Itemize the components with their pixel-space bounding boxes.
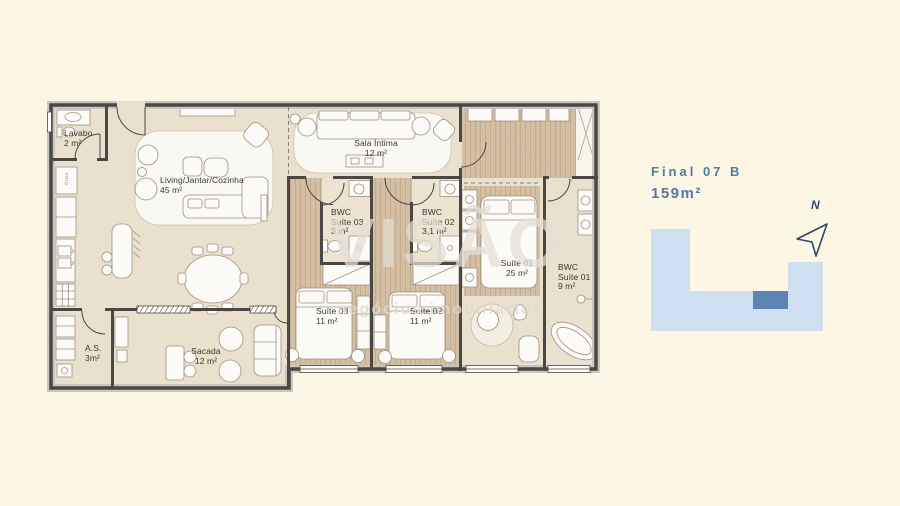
north-label: N [811, 198, 820, 212]
room-label-sacada: Sacada12 m² [178, 347, 234, 366]
room-label-lavabo: Lavabo2 m² [64, 129, 93, 148]
floor-plan-drawing [0, 0, 900, 506]
room-label-bwc-suite-03: BWCSuíte 033 m² [331, 208, 363, 237]
room-label-bwc-suite-01: BWCSuíte 019 m² [558, 263, 590, 292]
room-label-suite-03: Suíte 0311 m² [316, 307, 348, 326]
unit-title: Final 07 B [651, 164, 742, 179]
fridge-label: FRIG [64, 173, 69, 186]
unit-position-marker [753, 291, 788, 309]
room-label-bwc-suite-02: BWCSuíte 023,1 m² [422, 208, 454, 237]
room-label-as: A.S.3m² [85, 344, 101, 363]
north-arrow-icon [797, 224, 827, 256]
unit-area: 159m² [651, 185, 702, 202]
room-label-suite-02: Suíte 0211 m² [410, 307, 442, 326]
floor-plan-page: Lavabo2 m² Living/Jantar/Cozinha45 m² Sa… [0, 0, 900, 506]
unit-location-diagram [651, 229, 823, 331]
room-label-suite-01: Suíte 0125 m² [494, 259, 540, 278]
room-label-sala-intima: Sala Íntima12 m² [336, 139, 416, 158]
room-label-living: Living/Jantar/Cozinha45 m² [160, 176, 244, 195]
